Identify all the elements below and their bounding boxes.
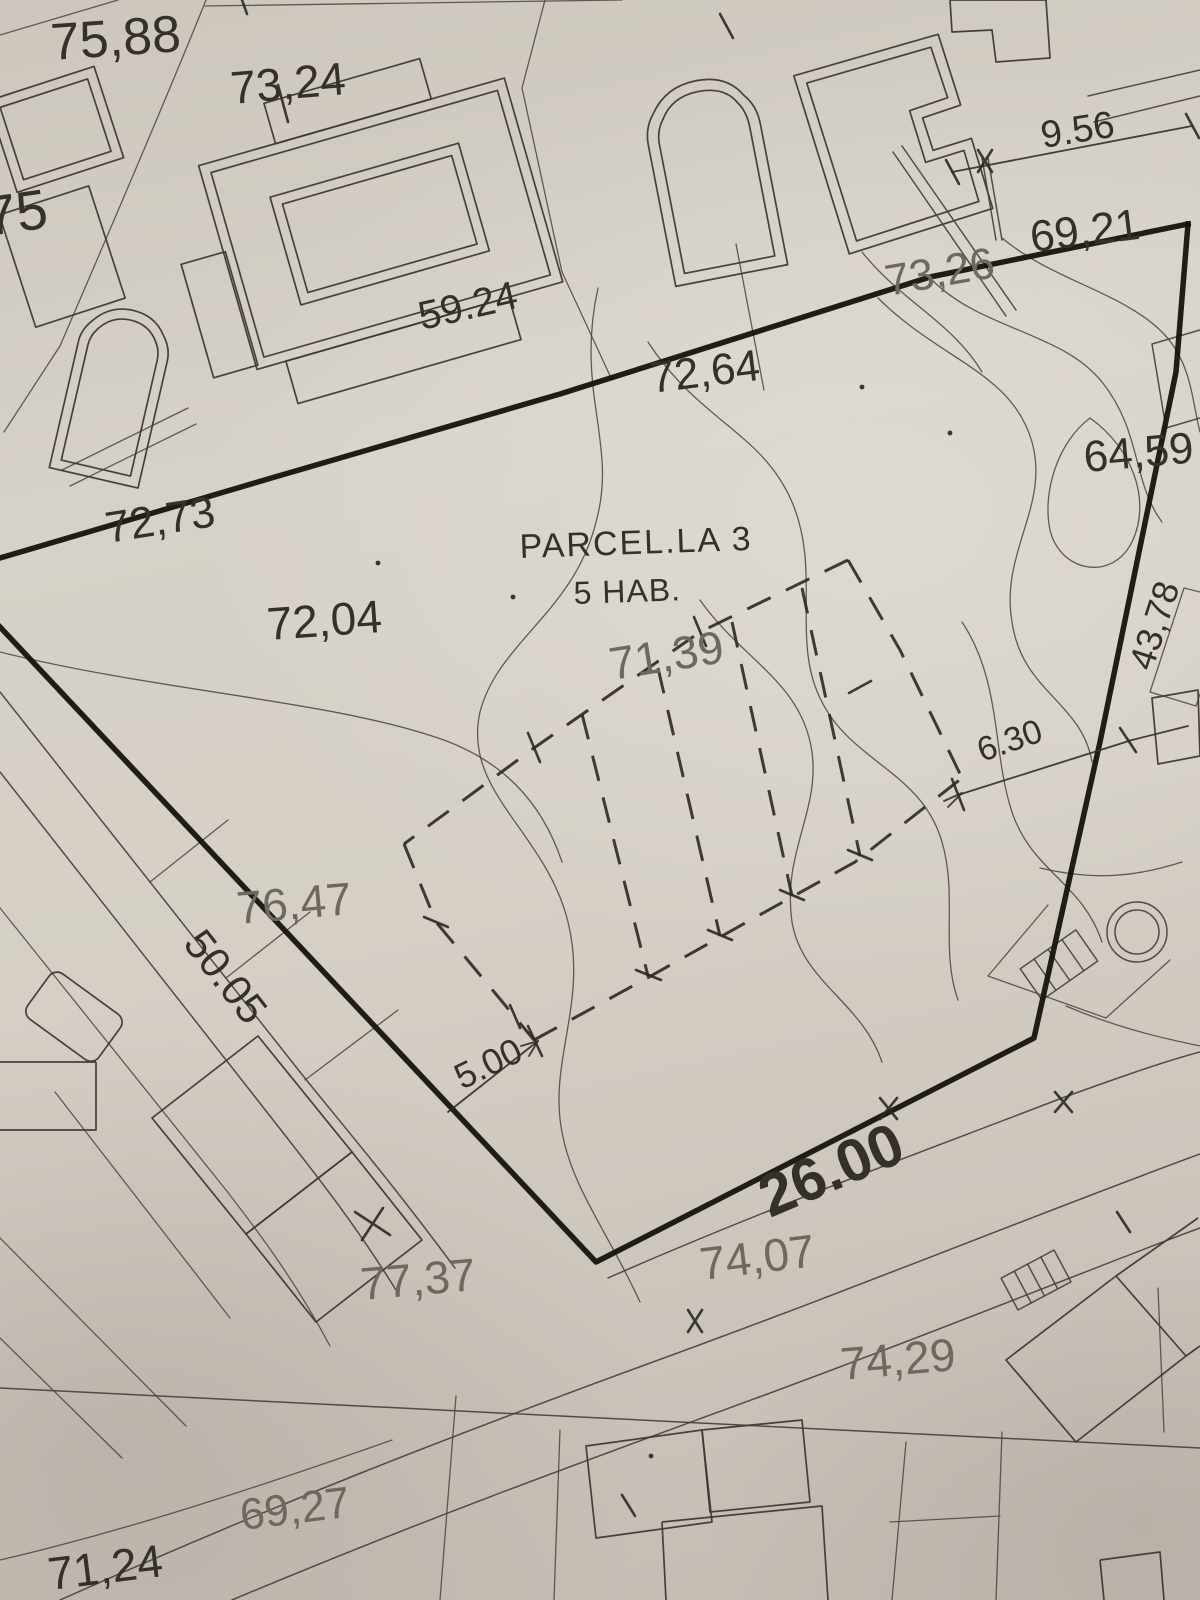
spot-elevation-74-07: 74,07	[697, 1224, 818, 1290]
dimension-26-00: 26.00	[749, 1110, 913, 1230]
spot-elevation-64-59: 64,59	[1082, 424, 1196, 482]
spot-elevation-74-29: 74,29	[838, 1328, 957, 1390]
dimension-6-30: 6.30	[972, 712, 1047, 769]
roundabout-symbol	[1107, 902, 1167, 962]
spot-elevation-73-26: 73,26	[881, 238, 998, 305]
hatched-rect-symbol	[1020, 930, 1097, 1000]
parcel-subtitle: 5 HAB.	[573, 571, 682, 611]
dimension-59-24: 59.24	[414, 273, 521, 338]
spot-elevation-73-24: 73,24	[228, 52, 347, 114]
parcel-title: PARCEL.LA 3	[519, 520, 753, 566]
contour-lines	[0, 238, 1200, 1302]
dimension-50-05: 50.05	[175, 921, 277, 1033]
spot-elevation-72-64: 72,64	[647, 341, 762, 403]
dimension-5-00: 5.00	[448, 1030, 529, 1098]
building-footprints	[0, 0, 1200, 1600]
spot-elevation-76-47: 76,47	[234, 872, 353, 934]
dimension-9-56: 9.56	[1038, 104, 1118, 157]
spot-elevation-72-04: 72,04	[265, 590, 383, 650]
site-plan-map: 75,88 73,24 75 9.56 69,21 73,26 59.24 72…	[0, 0, 1200, 1600]
spot-elevation-75-88: 75,88	[49, 5, 183, 72]
spot-elevation-69-21: 69,21	[1027, 200, 1142, 262]
map-labels: 75,88 73,24 75 9.56 69,21 73,26 59.24 72…	[0, 5, 1196, 1600]
spot-elevation-71-39: 71,39	[605, 621, 727, 690]
spot-elevation-75: 75	[0, 177, 51, 248]
spot-elevation-72-73: 72,73	[102, 487, 218, 553]
road-lines	[0, 0, 1200, 1600]
spot-elevation-77-37: 77,37	[358, 1248, 477, 1310]
